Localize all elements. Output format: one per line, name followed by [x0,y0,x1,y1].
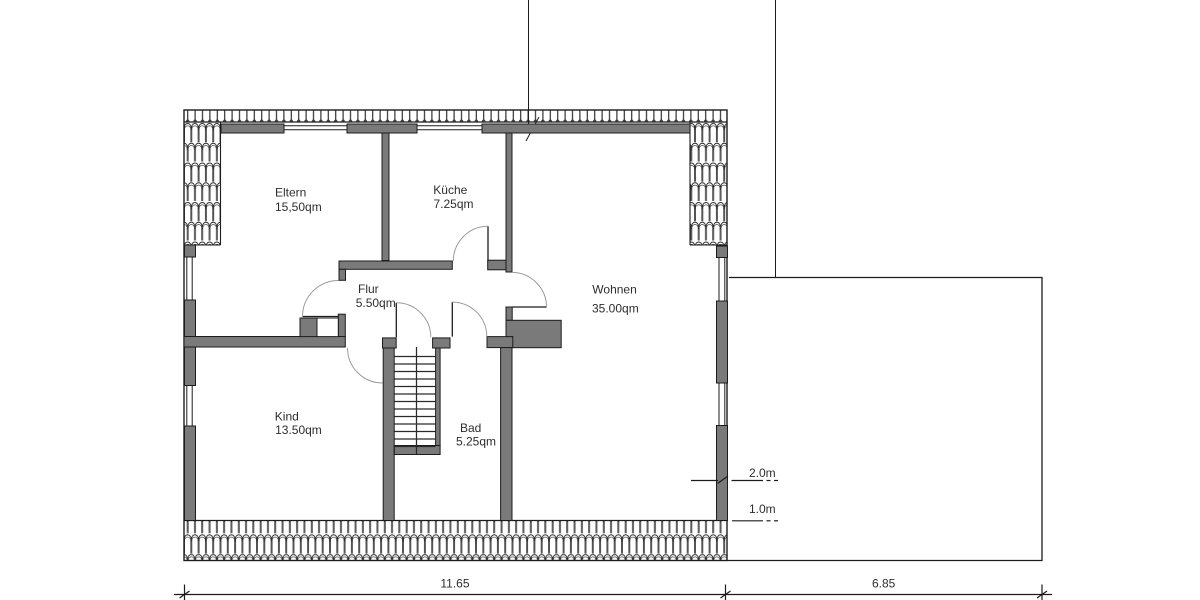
svg-text:5.25qm: 5.25qm [456,435,496,449]
svg-text:15,50qm: 15,50qm [275,200,322,214]
svg-text:Bad: Bad [460,421,481,435]
svg-text:Eltern: Eltern [275,185,306,199]
svg-text:13.50qm: 13.50qm [275,423,322,437]
svg-text:1.0m: 1.0m [749,502,776,516]
svg-text:7.25qm: 7.25qm [434,197,474,211]
svg-text:Flur: Flur [358,282,379,296]
svg-text:2.0m: 2.0m [749,466,776,480]
svg-text:11.65: 11.65 [440,577,469,591]
svg-text:6.85: 6.85 [872,577,896,591]
svg-text:Wohnen: Wohnen [592,283,636,297]
svg-text:35.00qm: 35.00qm [592,301,639,315]
svg-text:Kind: Kind [275,409,299,423]
svg-text:5.50qm: 5.50qm [356,296,396,310]
svg-text:Küche: Küche [433,183,467,197]
